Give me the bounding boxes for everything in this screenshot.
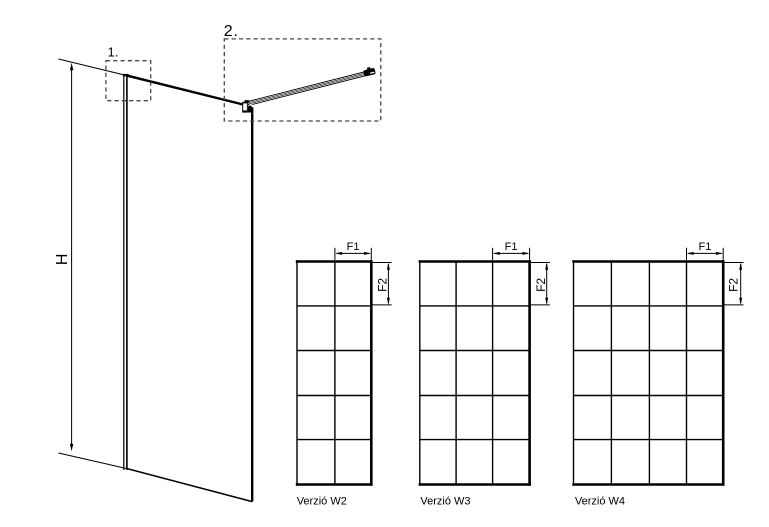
svg-text:F2: F2	[534, 278, 548, 292]
svg-text:2.: 2.	[224, 23, 239, 40]
svg-text:F1: F1	[347, 241, 360, 253]
svg-text:F1: F1	[505, 241, 518, 253]
svg-text:Verzió W2: Verzió W2	[297, 496, 347, 508]
svg-text:1.: 1.	[108, 45, 119, 60]
svg-text:Verzió W3: Verzió W3	[420, 496, 470, 508]
svg-text:H: H	[54, 254, 71, 266]
svg-text:F1: F1	[698, 241, 711, 253]
svg-text:F2: F2	[376, 278, 390, 292]
svg-text:F2: F2	[726, 278, 740, 292]
svg-text:Verzió W4: Verzió W4	[575, 496, 625, 508]
